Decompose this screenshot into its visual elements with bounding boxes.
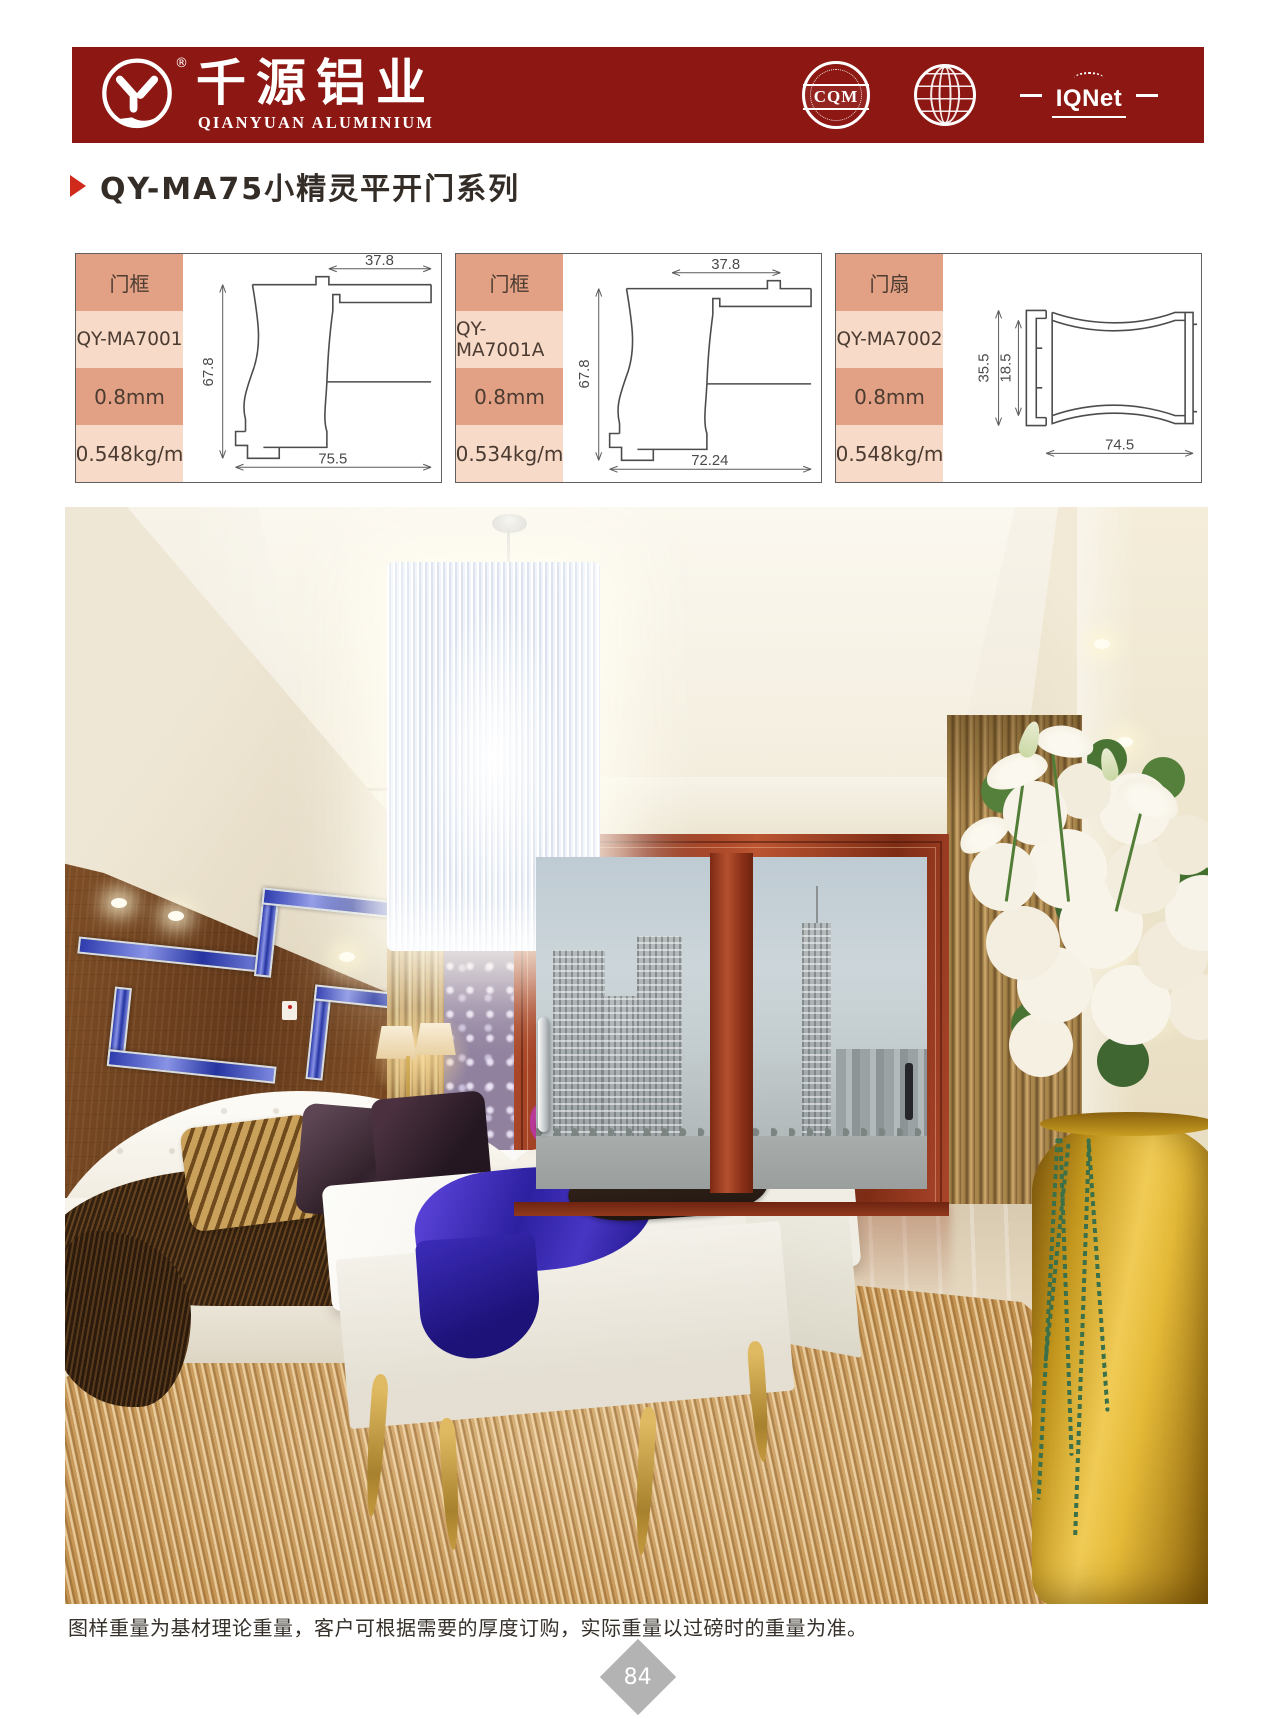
iqnet-label: IQNet (1056, 85, 1123, 113)
iqnet-center: IQNet (1052, 72, 1126, 118)
dim-bottom: 74.5 (1105, 437, 1134, 453)
header-band: ® 千源铝业 QIANYUAN ALUMINIUM CQM IQNet (72, 47, 1204, 143)
living-room-photo (65, 507, 1208, 1604)
iso-globe-icon (914, 64, 976, 126)
spec-labels: 门框 QY-MA7001A 0.8mm 0.534kg/m (456, 254, 563, 482)
chandelier-chain (507, 529, 510, 566)
door-handle-right (905, 1063, 913, 1120)
spec-card-qy-ma7001: 门框 QY-MA7001 0.8mm 0.548kg/m (75, 253, 442, 483)
dim-outer: 35.5 (977, 354, 993, 383)
brand-logo-icon (94, 52, 180, 138)
brand-name-en: QIANYUAN ALUMINIUM (196, 113, 436, 133)
ceiling-spotlight (1094, 639, 1110, 649)
profile-thickness: 0.8mm (76, 368, 183, 425)
brand-logo: ® (94, 52, 186, 138)
profile-weight: 0.534kg/m (456, 425, 563, 482)
dim-bottom: 75.5 (318, 451, 347, 467)
page-number: 84 (624, 1665, 652, 1690)
bronze-curtain (947, 715, 1082, 1211)
iqnet-underline (1052, 116, 1126, 118)
profile-thickness: 0.8mm (836, 368, 943, 425)
ceiling-spotlight (168, 911, 184, 921)
door-glass-left (536, 857, 710, 1189)
city-ground (753, 1136, 927, 1189)
marble-wall-right (1077, 507, 1208, 1209)
weight-disclaimer-note: 图样重量为基材理论重量，客户可根据需要的厚度订购，实际重量以过磅时的重量为准。 (68, 1612, 868, 1641)
iqnet-badge: IQNet (1020, 72, 1158, 118)
profile-drawing: 37.8 67.8 75.5 (183, 254, 441, 482)
brand-name-cn: 千源铝业 (196, 57, 436, 110)
iqnet-dash-right (1136, 94, 1158, 97)
profile-model: QY-MA7002 (836, 311, 943, 368)
profile-type: 门扇 (836, 254, 943, 311)
certification-logos: CQM IQNet (802, 61, 1158, 129)
profile-type: 门框 (456, 254, 563, 311)
page-number-diamond: 84 (600, 1639, 676, 1715)
wall-switch (282, 1001, 297, 1020)
profile-cross-section-ma7002: 35.5 18.5 74.5 (943, 254, 1201, 482)
profile-type: 门框 (76, 254, 183, 311)
door-handle-left (538, 1017, 549, 1132)
spec-labels: 门框 QY-MA7001 0.8mm 0.548kg/m (76, 254, 183, 482)
profile-weight: 0.548kg/m (76, 425, 183, 482)
dim-top: 37.8 (365, 254, 394, 269)
inlay-strip (77, 937, 270, 974)
cqm-label: CQM (803, 84, 869, 110)
profile-weight: 0.548kg/m (836, 425, 943, 482)
profile-cross-section-ma7001: 37.8 67.8 75.5 (183, 254, 441, 482)
sliding-door (514, 834, 948, 1216)
inlay-strip (107, 1049, 276, 1084)
door-sill (514, 1202, 948, 1215)
profile-model: QY-MA7001A (456, 311, 563, 368)
page-title: QY-MA75小精灵平开门系列 (100, 164, 520, 208)
brand-text: 千源铝业 QIANYUAN ALUMINIUM (196, 57, 436, 133)
profile-thickness: 0.8mm (456, 368, 563, 425)
dim-left: 67.8 (201, 357, 217, 386)
door-mullion (710, 853, 753, 1193)
spec-labels: 门扇 QY-MA7002 0.8mm 0.548kg/m (836, 254, 943, 482)
profile-drawing: 35.5 18.5 74.5 (943, 254, 1201, 482)
ceiling-spotlight (111, 898, 127, 908)
dim-top: 37.8 (711, 257, 740, 273)
iqnet-dots-arc (1074, 72, 1104, 85)
lamp-shade (415, 1023, 456, 1056)
spec-card-qy-ma7001a: 门框 QY-MA7001A 0.8mm 0.534kg/m (455, 253, 822, 483)
dim-bottom: 72.24 (691, 453, 728, 469)
spec-card-qy-ma7002: 门扇 QY-MA7002 0.8mm 0.548kg/m (835, 253, 1202, 483)
profile-cross-section-ma7001a: 37.8 67.8 72.24 (563, 254, 821, 482)
gold-floor-vase (1032, 1119, 1208, 1604)
cqm-cert-badge: CQM (802, 61, 870, 129)
profile-spec-cards: 门框 QY-MA7001 0.8mm 0.548kg/m (75, 253, 1202, 483)
city-ground (536, 1136, 710, 1189)
inlay-strip (305, 990, 331, 1081)
registered-mark: ® (175, 56, 188, 71)
catalog-page: ® 千源铝业 QIANYUAN ALUMINIUM CQM IQNet (0, 0, 1276, 1719)
dim-left: 67.8 (577, 359, 593, 388)
dim-inner: 18.5 (998, 354, 1014, 383)
profile-drawing: 37.8 67.8 72.24 (563, 254, 821, 482)
wall-washer-light (1145, 1012, 1161, 1022)
ceiling-tray (225, 507, 1048, 792)
profile-model: QY-MA7001 (76, 311, 183, 368)
iqnet-dash-left (1020, 94, 1042, 97)
door-glass-right (753, 857, 927, 1189)
section-title-row: QY-MA75小精灵平开门系列 (70, 164, 520, 208)
lamp-shade (376, 1026, 417, 1059)
red-arrow-icon (70, 175, 86, 197)
white-rose-bouquet (1071, 913, 1127, 969)
